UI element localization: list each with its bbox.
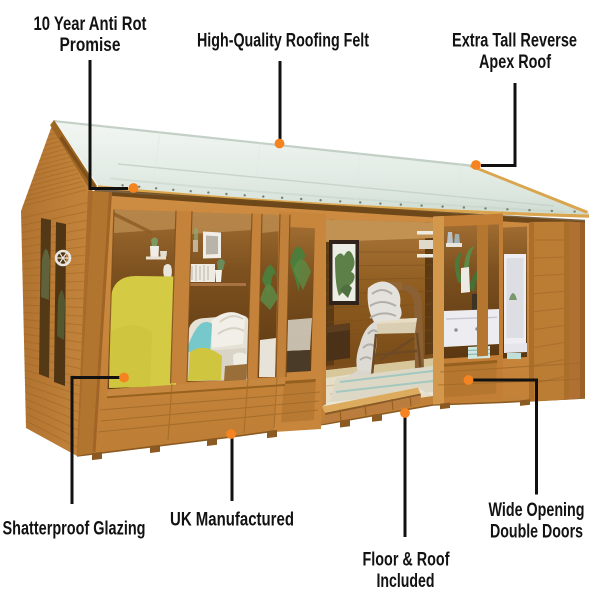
svg-text:Shatterproof Glazing: Shatterproof Glazing [3, 518, 146, 540]
svg-text:Apex Roof: Apex Roof [479, 51, 551, 73]
svg-text:Included: Included [377, 570, 435, 592]
svg-text:Double Doors: Double Doors [490, 521, 583, 543]
svg-text:High-Quality Roofing Felt: High-Quality Roofing Felt [197, 30, 369, 52]
svg-text:Extra Tall Reverse: Extra Tall Reverse [452, 30, 577, 52]
svg-text:Promise: Promise [60, 34, 121, 56]
svg-text:UK Manufactured: UK Manufactured [170, 509, 294, 531]
svg-text:Floor & Roof: Floor & Roof [363, 549, 450, 571]
svg-text:10 Year Anti Rot: 10 Year Anti Rot [34, 13, 147, 35]
svg-text:Wide Opening: Wide Opening [489, 499, 585, 521]
